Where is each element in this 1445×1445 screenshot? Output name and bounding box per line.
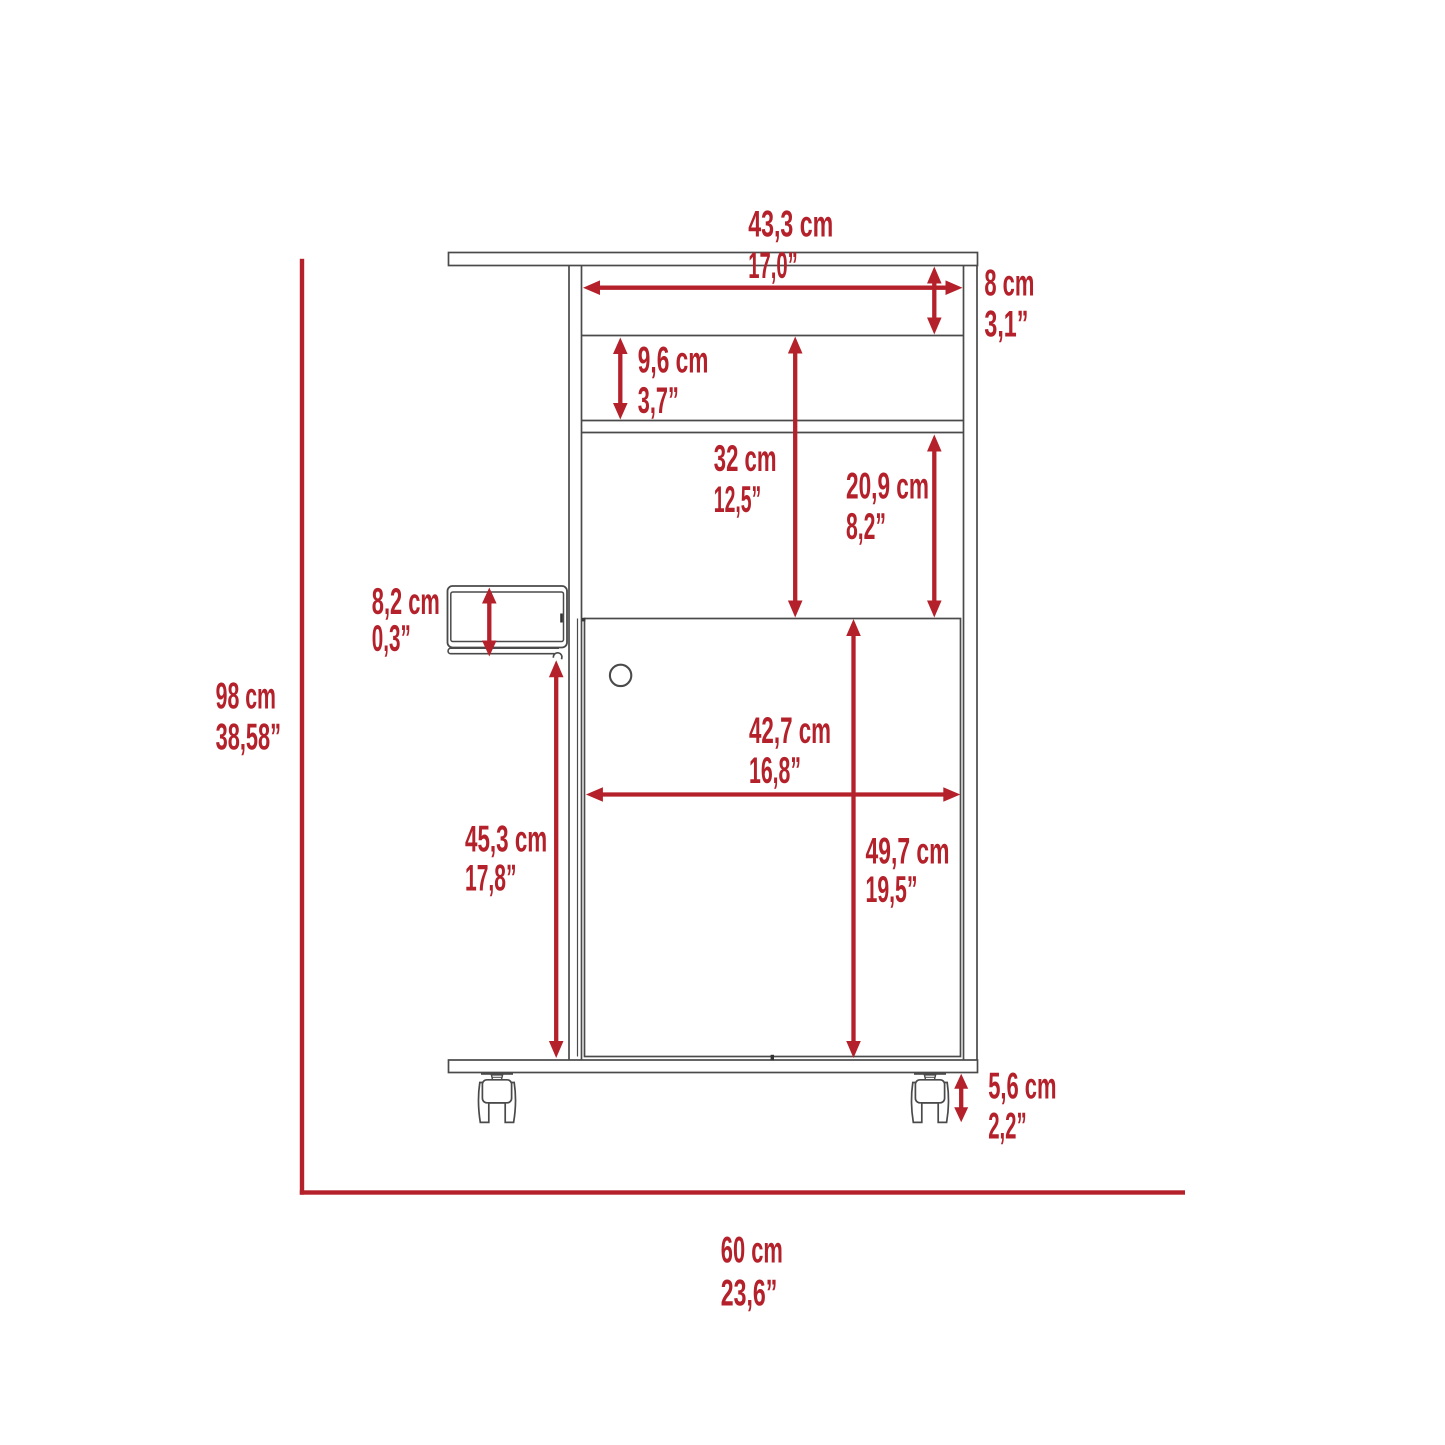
svg-text:45,3 cm: 45,3 cm [465,817,547,859]
svg-text:17,0”: 17,0” [748,244,798,286]
svg-text:12,5”: 12,5” [714,478,761,520]
svg-text:20,9 cm: 20,9 cm [846,465,929,507]
svg-text:0,3”: 0,3” [372,617,411,659]
svg-text:8,2”: 8,2” [846,505,886,547]
svg-text:8 cm: 8 cm [984,262,1034,304]
svg-text:32 cm: 32 cm [714,437,777,479]
svg-text:2,2”: 2,2” [988,1105,1026,1147]
svg-text:23,6”: 23,6” [721,1272,778,1314]
svg-text:3,1”: 3,1” [984,302,1028,344]
svg-text:43,3 cm: 43,3 cm [748,203,833,245]
svg-text:42,7 cm: 42,7 cm [749,709,831,751]
svg-text:38,58”: 38,58” [216,716,281,758]
svg-text:49,7 cm: 49,7 cm [866,829,950,871]
svg-text:17,8”: 17,8” [465,857,517,899]
svg-text:16,8”: 16,8” [749,749,801,791]
svg-text:8,2 cm: 8,2 cm [372,580,440,622]
svg-text:19,5”: 19,5” [866,868,918,910]
svg-text:98 cm: 98 cm [216,674,276,716]
svg-text:5,6 cm: 5,6 cm [988,1064,1056,1106]
svg-text:3,7”: 3,7” [638,379,679,421]
svg-text:9,6 cm: 9,6 cm [638,338,709,380]
svg-text:60 cm: 60 cm [721,1228,783,1270]
